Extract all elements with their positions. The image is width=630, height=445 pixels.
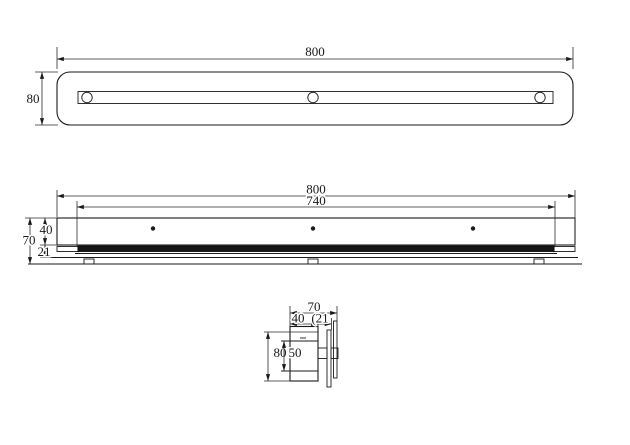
dim-top-width: 800 bbox=[305, 44, 325, 59]
dim-top-depth: 80 bbox=[27, 91, 40, 106]
top-view: 800 80 bbox=[27, 44, 574, 125]
front-view: 800 740 70 40 21 bbox=[23, 182, 583, 265]
wall-plate bbox=[327, 330, 331, 387]
dim-front-body-height: 40 bbox=[40, 222, 53, 237]
rail-clip-right bbox=[534, 259, 544, 264]
drawing-sheet: 800 80 800 740 bbox=[0, 0, 630, 445]
glass-edge bbox=[78, 246, 554, 252]
fixing-strip bbox=[334, 321, 338, 378]
end-cap-left bbox=[57, 247, 78, 252]
screw-dot-center-icon bbox=[311, 226, 315, 230]
end-cap-right bbox=[554, 247, 575, 252]
technical-drawing: 800 80 800 740 bbox=[0, 0, 630, 445]
screw-dot-right-icon bbox=[471, 226, 475, 230]
front-body bbox=[57, 218, 575, 245]
rail-clip-center bbox=[308, 259, 318, 264]
top-view-outline bbox=[57, 72, 573, 125]
side-view: 70 40 (21 80 50 bbox=[264, 299, 338, 387]
dim-side-body-depth: 40 bbox=[292, 311, 305, 326]
dim-front-rail-height: 21 bbox=[38, 244, 51, 259]
screw-boss-inner bbox=[318, 348, 327, 359]
dim-front-inner-width: 740 bbox=[306, 193, 326, 208]
dim-side-height: 80 bbox=[274, 345, 287, 360]
dim-side-plate-offset: (21 bbox=[311, 311, 328, 326]
dim-side-inner-height: 50 bbox=[289, 345, 302, 360]
mount-hole-left-icon bbox=[82, 92, 92, 102]
rail-clip-left bbox=[84, 259, 94, 264]
mount-hole-right-icon bbox=[535, 92, 545, 102]
mount-hole-center-icon bbox=[308, 92, 318, 102]
dim-front-total-height: 70 bbox=[23, 233, 36, 248]
screw-dot-left-icon bbox=[151, 226, 155, 230]
